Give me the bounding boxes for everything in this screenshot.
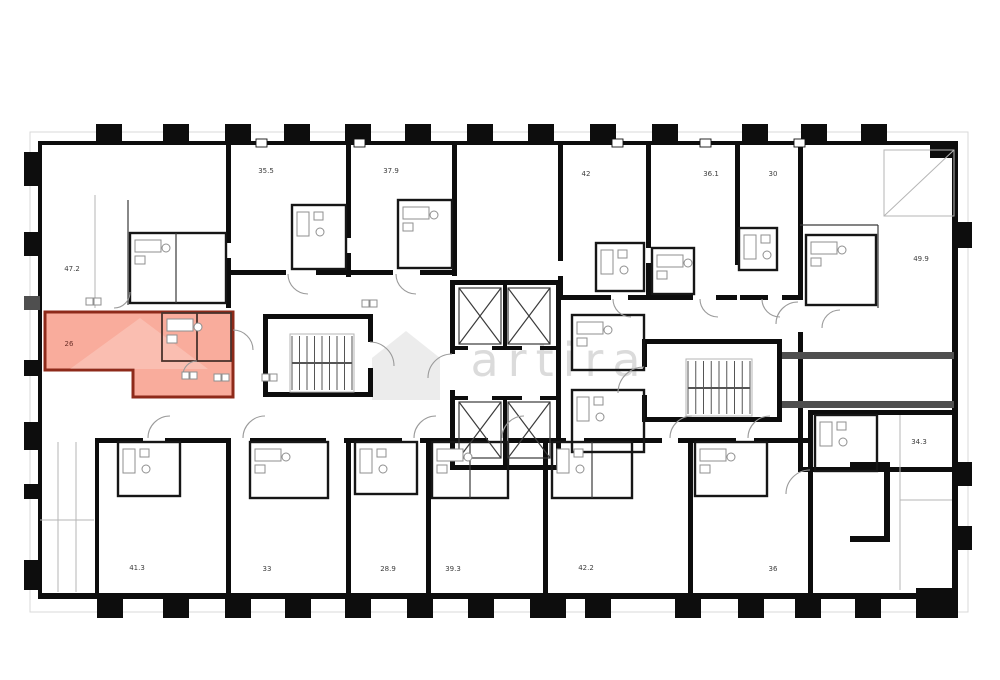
- label-unit-42-2: 42.2: [578, 564, 594, 572]
- label-unit-34-3: 34.3: [911, 438, 927, 446]
- staircase-left: [290, 334, 354, 392]
- label-unit-33: 33: [263, 565, 272, 573]
- staircase-right: [686, 359, 752, 416]
- label-unit-42: 42: [582, 170, 591, 178]
- label-unit-35-5: 35.5: [258, 167, 274, 175]
- label-unit-30: 30: [769, 170, 778, 178]
- selected-apartment[interactable]: [45, 312, 233, 397]
- label-unit-36: 36: [769, 565, 778, 573]
- label-unit-41-3: 41.3: [129, 564, 145, 572]
- label-unit-37-9: 37.9: [383, 167, 399, 175]
- label-unit-47-2: 47.2: [64, 265, 80, 273]
- label-unit-49-9: 49.9: [913, 255, 929, 263]
- floor-plan-svg: artira: [0, 0, 1000, 680]
- label-unit-39-3: 39.3: [445, 565, 461, 573]
- watermark-house-icon: [372, 331, 440, 400]
- label-unit-28-9: 28.9: [380, 565, 396, 573]
- floor-plan-image: artira: [0, 0, 1000, 680]
- label-selected-unit-26: 26: [65, 340, 74, 348]
- label-unit-36-1: 36.1: [703, 170, 719, 178]
